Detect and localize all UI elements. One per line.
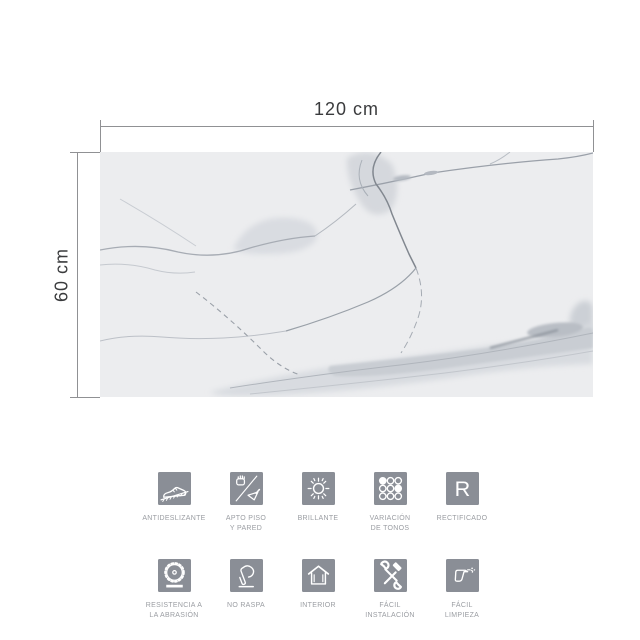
feature-no-raspa: NO RASPA xyxy=(210,559,282,621)
feature-label: ANTIDESLIZANTE xyxy=(142,514,205,524)
feature-label: BRILLANTE xyxy=(298,514,339,524)
feature-resistencia-abrasion: RESISTENCIA A LA ABRASIÓN xyxy=(138,559,210,621)
feature-label: FÁCIL LIMPIEZA xyxy=(445,601,479,621)
feature-label: RESISTENCIA A LA ABRASIÓN xyxy=(146,601,202,621)
feature-apto-piso-y-pared: APTO PISO Y PARED xyxy=(210,472,282,534)
feature-label: VARIACIÓN DE TONOS xyxy=(370,514,411,534)
width-dimension-tick-left xyxy=(100,120,101,152)
tile-height-label: 60 cm xyxy=(52,248,73,302)
tile-width-label: 120 cm xyxy=(100,99,593,120)
feature-label: FÁCIL INSTALACIÓN xyxy=(365,601,414,621)
product-spec-image: 120 cm 60 cm xyxy=(0,0,640,640)
feature-label-line1: VARIACIÓN xyxy=(370,514,411,524)
spray-gun-icon xyxy=(446,559,479,592)
sun-icon xyxy=(302,472,335,505)
feature-label-line1: APTO PISO xyxy=(226,514,266,524)
feature-row-2: RESISTENCIA A LA ABRASIÓN NO RASPA xyxy=(138,559,498,621)
feature-label-line1: BRILLANTE xyxy=(298,514,339,524)
height-dimension-tick-top xyxy=(70,152,100,153)
feature-label-line1: FÁCIL xyxy=(445,601,479,611)
feature-row-1: ANTIDESLIZANTE APTO PISO Y PARED xyxy=(138,472,498,534)
svg-text:R: R xyxy=(454,476,470,501)
letter-r-icon: R xyxy=(446,472,479,505)
height-dimension-line xyxy=(77,152,78,398)
feature-label-line2: LA ABRASIÓN xyxy=(146,611,202,621)
feature-label: NO RASPA xyxy=(227,601,265,611)
hand-press-icon xyxy=(230,559,263,592)
saw-blade-icon xyxy=(158,559,191,592)
feature-label-line1: FÁCIL xyxy=(365,601,414,611)
feature-variacion-de-tonos: VARIACIÓN DE TONOS xyxy=(354,472,426,534)
hand-trowel-icon xyxy=(230,472,263,505)
height-dimension-tick-bottom xyxy=(70,397,100,398)
tools-icon xyxy=(374,559,407,592)
feature-rectificado: R RECTIFICADO xyxy=(426,472,498,534)
width-dimension-tick-right xyxy=(593,120,594,152)
feature-label-line1: NO RASPA xyxy=(227,601,265,611)
feature-label: APTO PISO Y PARED xyxy=(226,514,266,534)
feature-brillante: BRILLANTE xyxy=(282,472,354,534)
house-icon xyxy=(302,559,335,592)
feature-facil-instalacion: FÁCIL INSTALACIÓN xyxy=(354,559,426,621)
feature-label-line1: INTERIOR xyxy=(300,601,336,611)
feature-label-line2: DE TONOS xyxy=(370,524,411,534)
feature-label-line2: Y PARED xyxy=(226,524,266,534)
feature-label-line1: RECTIFICADO xyxy=(437,514,488,524)
tone-dots-icon xyxy=(374,472,407,505)
feature-label-line1: RESISTENCIA A xyxy=(146,601,202,611)
feature-label-line2: INSTALACIÓN xyxy=(365,611,414,621)
shoe-slope-icon xyxy=(158,472,191,505)
tile-marble-image xyxy=(100,152,593,397)
feature-interior: INTERIOR xyxy=(282,559,354,621)
feature-label: INTERIOR xyxy=(300,601,336,611)
feature-label-line1: ANTIDESLIZANTE xyxy=(142,514,205,524)
feature-facil-limpieza: FÁCIL LIMPIEZA xyxy=(426,559,498,621)
feature-antideslizante: ANTIDESLIZANTE xyxy=(138,472,210,534)
feature-label: RECTIFICADO xyxy=(437,514,488,524)
feature-label-line2: LIMPIEZA xyxy=(445,611,479,621)
width-dimension-line xyxy=(100,126,593,127)
